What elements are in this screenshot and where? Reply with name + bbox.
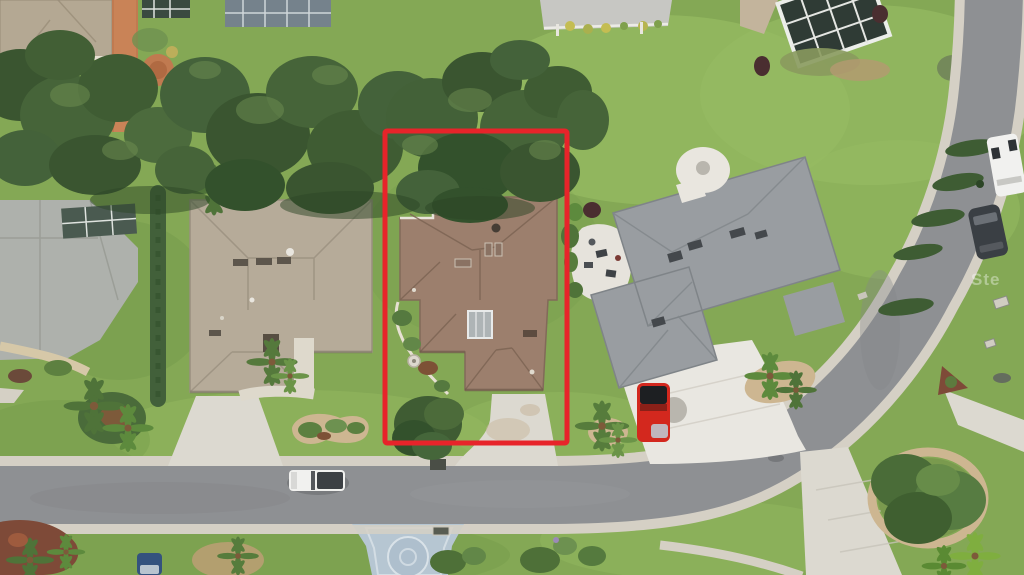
white-pickup-truck bbox=[287, 470, 349, 495]
roof-vent bbox=[256, 258, 272, 265]
pool-enclosure-top-middle bbox=[225, 0, 331, 27]
utility-box-north bbox=[430, 459, 446, 470]
utility-box-south bbox=[433, 527, 449, 535]
roof-vent bbox=[277, 257, 291, 264]
roof-vent bbox=[485, 243, 492, 256]
roof-vent bbox=[495, 243, 502, 256]
large-tree-bottom-right bbox=[871, 452, 986, 544]
aerial-photo: Ste bbox=[0, 0, 1024, 575]
roof-vent bbox=[233, 259, 248, 266]
red-pickup-truck bbox=[637, 383, 670, 442]
scene bbox=[0, 0, 1024, 575]
kidney-planting-bed bbox=[292, 414, 369, 444]
front-walkway bbox=[294, 338, 314, 394]
skylight bbox=[468, 311, 492, 338]
tree-canopy bbox=[0, 30, 609, 223]
roof-vent-round bbox=[492, 224, 501, 233]
blue-car-bottom bbox=[137, 553, 162, 575]
